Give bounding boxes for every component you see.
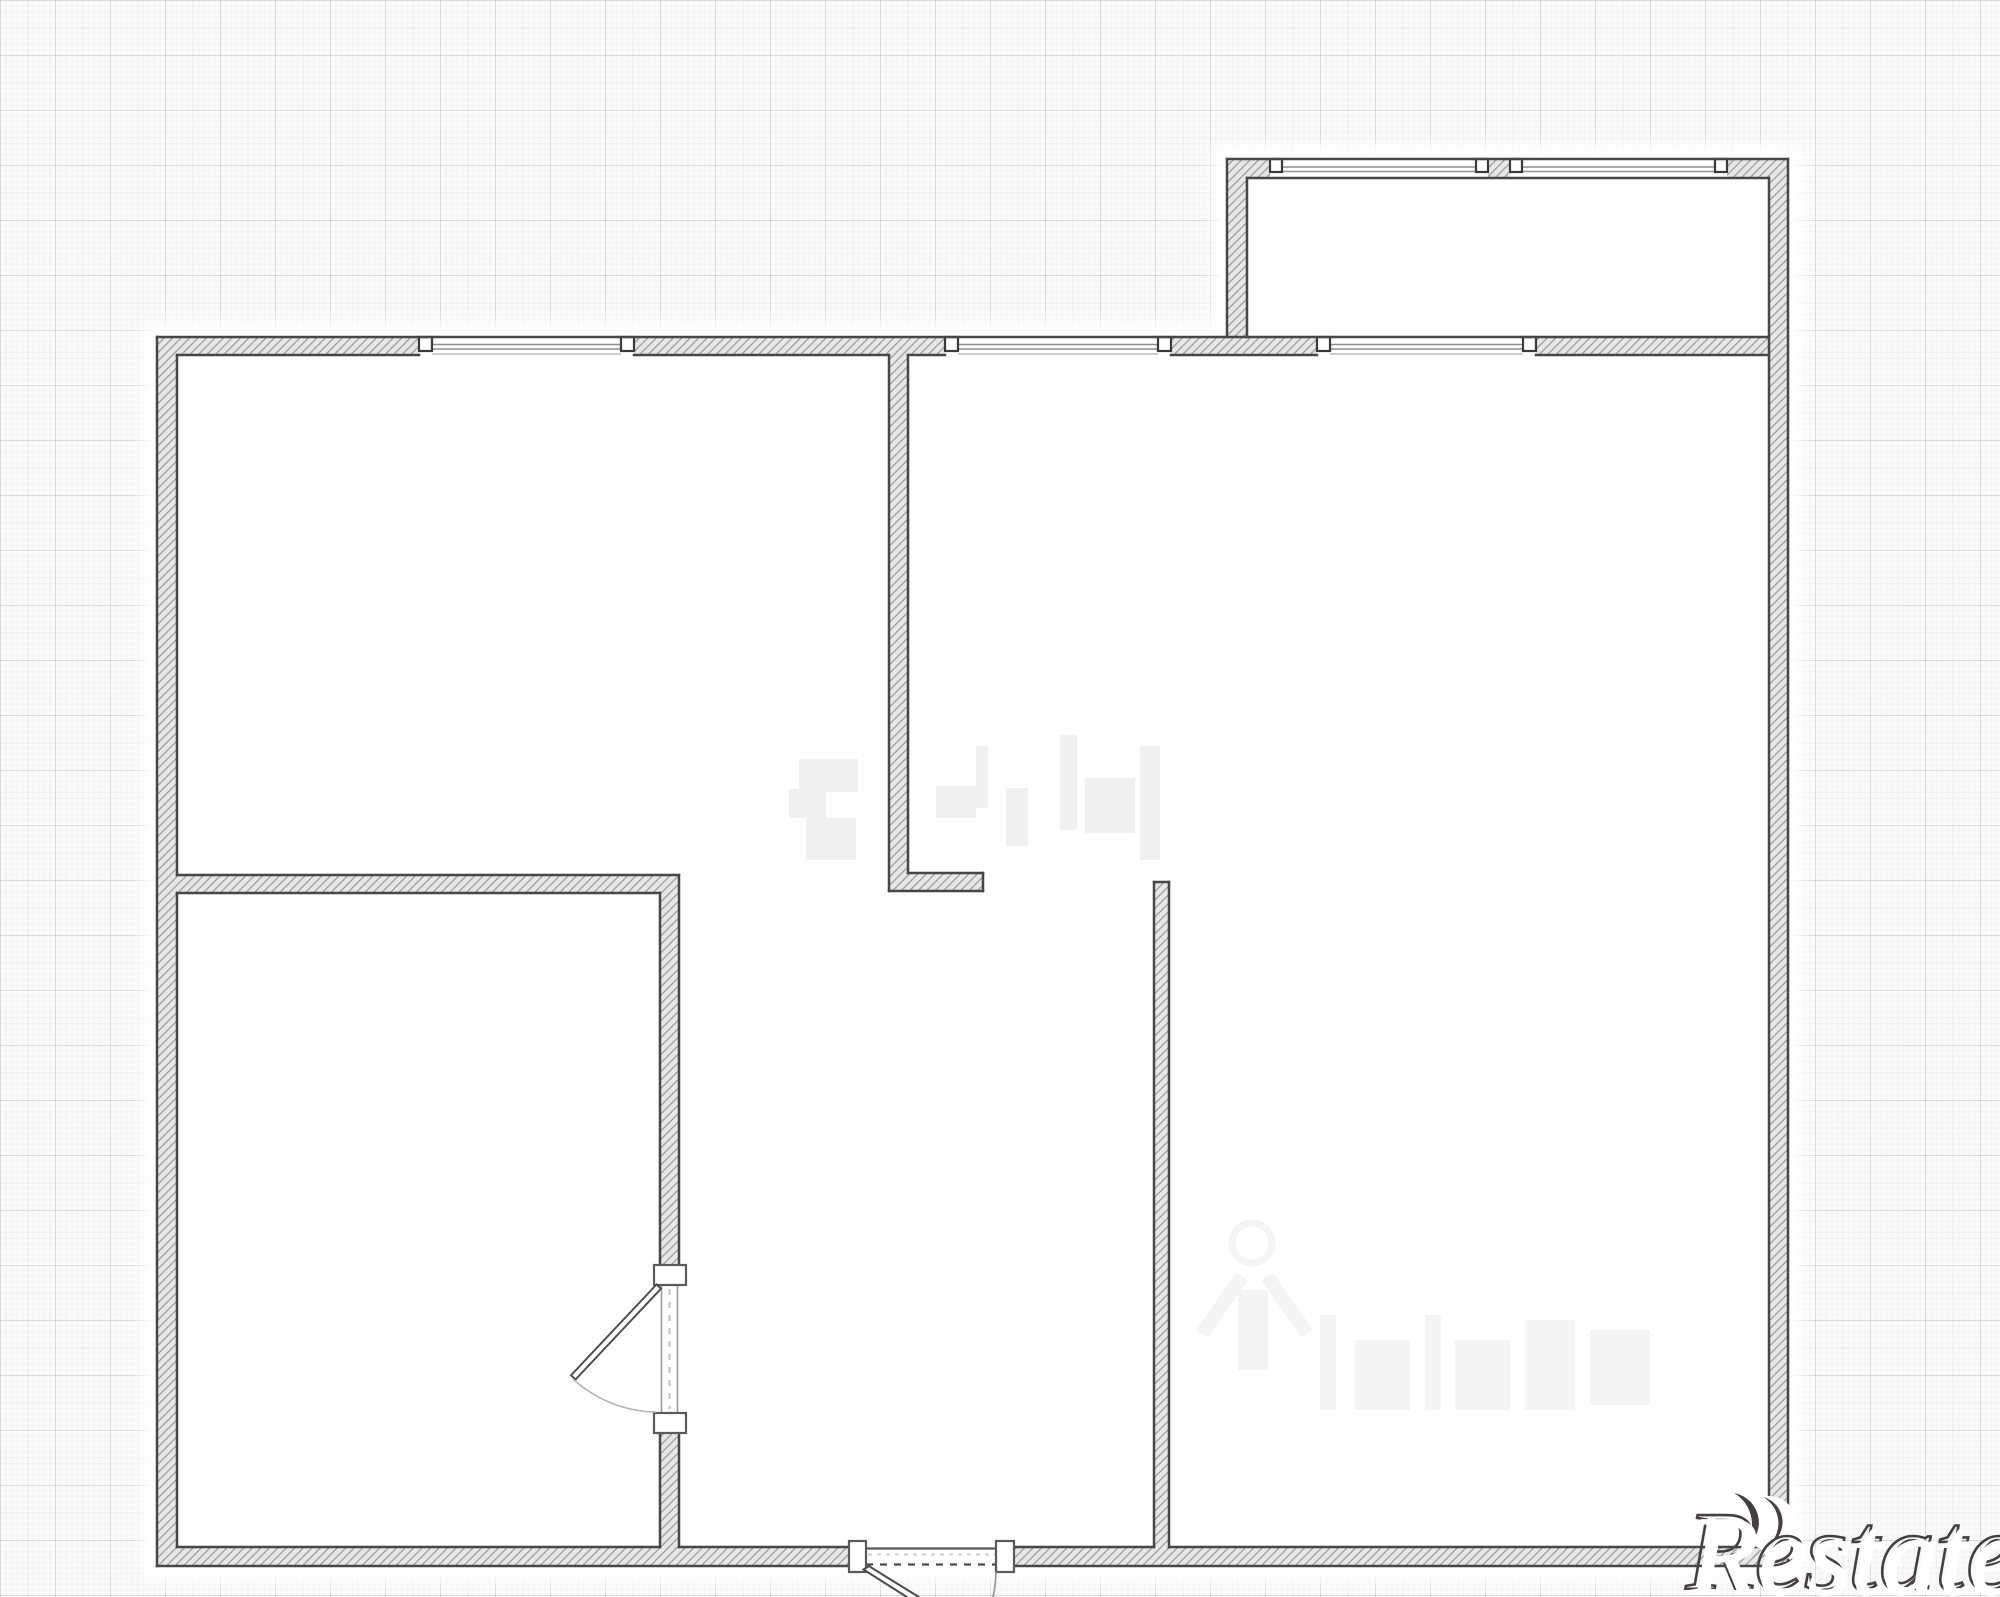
svg-text:Restate: Restate	[1689, 1495, 2000, 1597]
